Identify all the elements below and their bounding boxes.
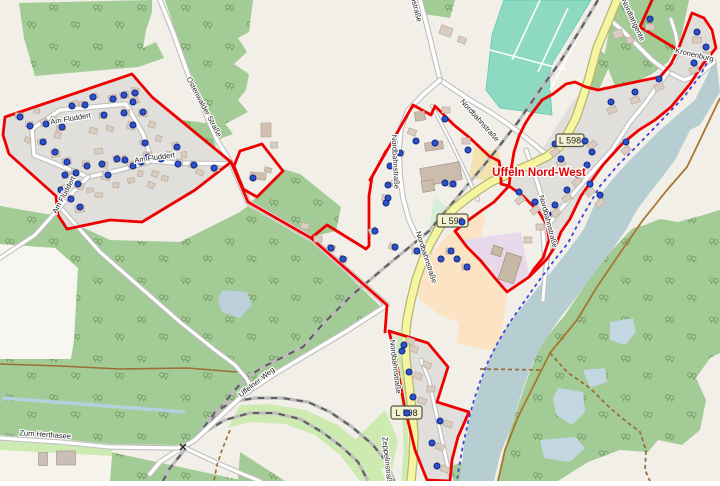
svg-text:Uffeln Nord-West: Uffeln Nord-West [492, 167, 586, 179]
svg-text:L 598: L 598 [559, 135, 581, 145]
